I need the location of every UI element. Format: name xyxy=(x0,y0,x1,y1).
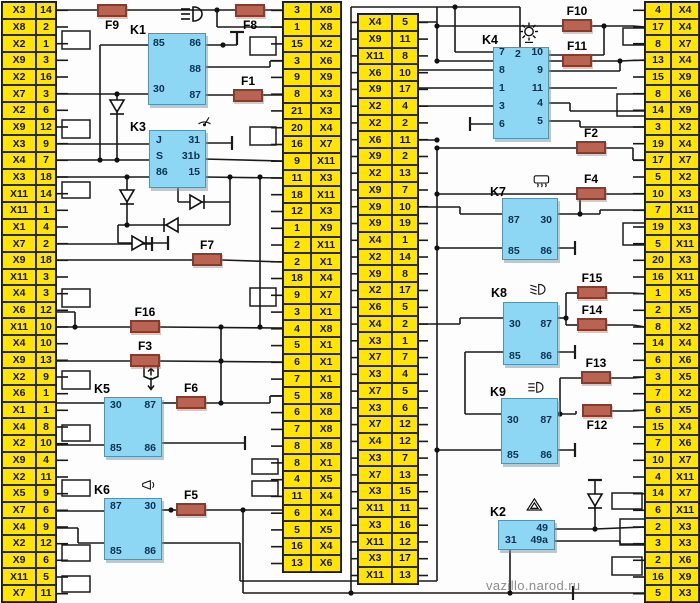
relay-pin-5: 5 xyxy=(537,116,543,127)
connector-cell: 8 xyxy=(645,35,671,52)
connector-cell: X2 xyxy=(358,249,392,266)
connector-row: 7X11 xyxy=(645,202,699,219)
connector-cell: 19 xyxy=(645,135,671,152)
connector-cell: X5 xyxy=(2,485,36,502)
connector-cell: 8 xyxy=(283,454,311,471)
connector-cell: 11 xyxy=(36,585,56,602)
fuse-label-F15: F15 xyxy=(575,271,609,285)
connector-cell: 4 xyxy=(392,366,418,383)
relay-pin-86: 86 xyxy=(156,167,168,178)
connector-cell: X3 xyxy=(2,169,36,186)
connector-cell: 3 xyxy=(36,85,56,102)
connector-row: X42 xyxy=(358,316,418,333)
connector-cell: 10 xyxy=(392,198,418,215)
connector-column-mid_left: 3X81X815X23X69X98X321X320X416X79X1111X31… xyxy=(282,1,342,573)
connector-cell: 16 xyxy=(36,69,56,86)
connector-cell: 18 xyxy=(36,252,56,269)
connector-row: 7X6 xyxy=(645,435,699,452)
connector-cell: 12 xyxy=(36,535,56,552)
relay-pin-30: 30 xyxy=(110,400,122,411)
connector-cell: 2 xyxy=(36,19,56,36)
connector-row: 6X8 xyxy=(283,404,341,421)
connector-cell: 15 xyxy=(645,69,671,86)
connector-cell: X4 xyxy=(358,316,392,333)
relay-pin-10: 10 xyxy=(531,47,543,58)
fuse-F14 xyxy=(577,318,607,331)
connector-cell: 2 xyxy=(645,552,671,569)
connector-cell: 9 xyxy=(283,153,311,170)
connector-cell: 16 xyxy=(283,136,311,153)
jumper-link xyxy=(623,28,645,45)
connector-row: 3X6 xyxy=(283,52,341,69)
connector-cell: X4 xyxy=(671,135,699,152)
connector-cell: X2 xyxy=(2,468,36,485)
connector-row: 15X9 xyxy=(645,69,699,86)
connector-cell: 14 xyxy=(392,249,418,266)
connector-cell: 6 xyxy=(645,502,671,519)
connector-row: X113 xyxy=(2,269,56,286)
connector-cell: 6 xyxy=(36,552,56,569)
relay-pin-9: 9 xyxy=(537,65,543,76)
relay-pin-2: 2 xyxy=(515,49,521,60)
jumper-link xyxy=(250,37,276,55)
connector-row: 17X4 xyxy=(645,19,699,36)
connector-cell: X9 xyxy=(671,568,699,585)
connector-cell: X9 xyxy=(2,119,36,136)
connector-cell: 12 xyxy=(36,119,56,136)
fuse-label-F5: F5 xyxy=(174,488,208,502)
connector-cell: 10 xyxy=(645,185,671,202)
connector-cell: X3 xyxy=(671,585,699,602)
connector-cell: 4 xyxy=(645,2,671,19)
connector-cell: 9 xyxy=(36,518,56,535)
fuse-label-F1: F1 xyxy=(231,74,265,88)
connector-cell: X1 xyxy=(311,371,341,388)
junction-dot xyxy=(601,23,606,28)
connector-cell: X2 xyxy=(358,282,392,299)
connector-row: X77 xyxy=(358,349,418,366)
connector-cell: 12 xyxy=(283,203,311,220)
connector-cell: X6 xyxy=(2,385,36,402)
high-beam-icon xyxy=(179,5,205,25)
connector-row: 2X11 xyxy=(283,237,341,254)
connector-cell: 8 xyxy=(36,418,56,435)
fuse-label-F14: F14 xyxy=(575,303,609,317)
connector-cell: 12 xyxy=(392,433,418,450)
connector-row: X31 xyxy=(358,332,418,349)
relay-label-K3: K3 xyxy=(130,120,146,134)
connector-cell: 2 xyxy=(36,235,56,252)
relay-K4: 2781361091145 xyxy=(493,47,549,139)
relay-label-K7: K7 xyxy=(490,185,506,199)
connector-cell: X2 xyxy=(2,368,36,385)
connector-row: X59 xyxy=(2,485,56,502)
connector-row: 3X5 xyxy=(645,368,699,385)
relay-K2: 493149a xyxy=(498,520,555,550)
connector-row: X115 xyxy=(2,568,56,585)
connector-cell: X2 xyxy=(358,115,392,132)
connector-row: X214 xyxy=(358,249,418,266)
junction-dot xyxy=(218,358,223,363)
connector-cell: X11 xyxy=(311,237,341,254)
connector-cell: X2 xyxy=(2,535,36,552)
connector-cell: X11 xyxy=(671,468,699,485)
connector-row: X210 xyxy=(2,435,56,452)
relay-K3: J31S31b8615 xyxy=(149,130,206,188)
connector-cell: X3 xyxy=(358,399,392,416)
connector-row: 4X5 xyxy=(283,471,341,488)
diode xyxy=(120,190,134,204)
connector-cell: 4 xyxy=(36,219,56,236)
connector-row: X76 xyxy=(2,502,56,519)
relay-pin-86: 86 xyxy=(144,443,156,454)
jumper-link xyxy=(62,31,90,49)
connector-cell: 1 xyxy=(392,332,418,349)
connector-row: 3X2 xyxy=(645,119,699,136)
diode xyxy=(164,218,178,232)
connector-cell: X9 xyxy=(358,182,392,199)
connector-cell: 1 xyxy=(36,385,56,402)
connector-row: 6X1 xyxy=(283,354,341,371)
relay-pin-31: 31 xyxy=(505,535,517,546)
connector-row: 15X4 xyxy=(645,418,699,435)
relay-pin-4: 4 xyxy=(537,98,543,109)
fuse-label-F2: F2 xyxy=(574,126,608,140)
connector-cell: 4 xyxy=(283,471,311,488)
relay-pin-8: 8 xyxy=(499,65,505,76)
connector-cell: 18 xyxy=(36,169,56,186)
connector-cell: X9 xyxy=(671,102,699,119)
connector-column-mid_right: X45X911X118X610X917X24X22X611X92X213X97X… xyxy=(357,13,419,585)
connector-cell: 15 xyxy=(283,36,311,53)
connector-cell: X3 xyxy=(311,86,341,103)
connector-cell: 17 xyxy=(392,81,418,98)
relay-pin-11: 11 xyxy=(532,83,543,94)
connector-row: 19X3 xyxy=(645,219,699,236)
connector-row: X610 xyxy=(358,64,418,81)
connector-cell: 10 xyxy=(36,335,56,352)
connector-cell: 3 xyxy=(645,368,671,385)
connector-cell: X4 xyxy=(671,335,699,352)
junction-dot xyxy=(220,42,225,47)
junction-dot xyxy=(577,211,582,216)
connector-row: 6X11 xyxy=(645,502,699,519)
connector-cell: X2 xyxy=(2,35,36,52)
connector-cell: X11 xyxy=(358,48,392,65)
connector-cell: 20 xyxy=(283,119,311,136)
connector-cell: X7 xyxy=(2,502,36,519)
connector-cell: 8 xyxy=(392,48,418,65)
relay-pin-85: 85 xyxy=(509,351,521,362)
connector-row: 12X3 xyxy=(283,203,341,220)
connector-row: X94 xyxy=(2,452,56,469)
connector-row: 14X4 xyxy=(645,335,699,352)
junction-dot xyxy=(452,4,457,9)
fuse-label-F8: F8 xyxy=(233,18,267,32)
connector-cell: X8 xyxy=(311,19,341,36)
connector-cell: 10 xyxy=(392,64,418,81)
fuse-F1 xyxy=(233,89,263,102)
connector-row: X118 xyxy=(358,48,418,65)
wiper-icon xyxy=(196,115,216,130)
connector-cell: X7 xyxy=(358,466,392,483)
connector-cell: 3 xyxy=(645,119,671,136)
relay-pin-87: 87 xyxy=(540,319,552,330)
connector-cell: 12 xyxy=(392,533,418,550)
connector-cell: X1 xyxy=(2,219,36,236)
fuse-F12 xyxy=(582,404,612,417)
connector-row: 7X2 xyxy=(645,385,699,402)
connector-cell: 1 xyxy=(283,220,311,237)
jumper-link xyxy=(252,481,278,496)
connector-cell: X4 xyxy=(2,285,36,302)
junction-dot xyxy=(218,400,223,405)
connector-row: X410 xyxy=(2,335,56,352)
hazard-icon xyxy=(526,498,546,514)
heated-rear-window-icon xyxy=(533,175,553,191)
connector-cell: 7 xyxy=(392,349,418,366)
connector-cell: 17 xyxy=(392,550,418,567)
connector-row: X611 xyxy=(358,131,418,148)
connector-cell: X8 xyxy=(311,404,341,421)
connector-row: 10X7 xyxy=(645,452,699,469)
connector-row: 5X1 xyxy=(283,337,341,354)
connector-row: X712 xyxy=(358,416,418,433)
connector-cell: X2 xyxy=(671,385,699,402)
connector-cell: X4 xyxy=(2,335,36,352)
connector-row: 4X11 xyxy=(645,468,699,485)
connector-row: 16X9 xyxy=(645,568,699,585)
connector-cell: X7 xyxy=(311,136,341,153)
connector-cell: X6 xyxy=(358,64,392,81)
connector-row: X34 xyxy=(358,366,418,383)
connector-cell: X6 xyxy=(358,299,392,316)
relay-pin-49a: 49a xyxy=(530,535,548,546)
connector-cell: 16 xyxy=(283,538,311,555)
connector-cell: X4 xyxy=(671,2,699,19)
junction-dot xyxy=(434,58,439,63)
connector-row: X1111 xyxy=(358,500,418,517)
connector-cell: X8 xyxy=(311,320,341,337)
connector-row: 1X8 xyxy=(283,19,341,36)
relay-pin-6: 6 xyxy=(499,119,505,130)
connector-cell: 17 xyxy=(645,152,671,169)
connector-cell: 2 xyxy=(392,148,418,165)
relay-K5: 30878586 xyxy=(104,397,162,457)
jumper-link xyxy=(250,127,276,145)
connector-cell: X2 xyxy=(2,102,36,119)
connector-row: X212 xyxy=(2,535,56,552)
connector-cell: 6 xyxy=(283,354,311,371)
connector-cell: 3 xyxy=(645,535,671,552)
connector-cell: X11 xyxy=(358,533,392,550)
connector-cell: 5 xyxy=(283,521,311,538)
connector-cell: X11 xyxy=(358,500,392,517)
fuse-F4 xyxy=(576,187,606,200)
connector-row: X11 xyxy=(2,402,56,419)
junction-dot xyxy=(124,222,129,227)
connector-cell: X9 xyxy=(358,31,392,48)
junction-dot xyxy=(557,411,562,416)
connector-cell: X7 xyxy=(358,349,392,366)
connector-cell: X3 xyxy=(311,203,341,220)
jumper-link xyxy=(617,94,645,116)
connector-cell: 4 xyxy=(645,468,671,485)
connector-cell: 9 xyxy=(36,368,56,385)
connector-cell: X11 xyxy=(2,568,36,585)
connector-row: 2X1 xyxy=(283,253,341,270)
connector-cell: 6 xyxy=(283,404,311,421)
relay-pin-86: 86 xyxy=(540,246,552,257)
fuse-label-F9: F9 xyxy=(95,18,129,32)
connector-cell: 9 xyxy=(283,287,311,304)
relay-pin-S: S xyxy=(156,151,163,162)
connector-cell: X4 xyxy=(358,14,392,31)
connector-cell: X9 xyxy=(2,52,36,69)
connector-row: 18X11 xyxy=(283,186,341,203)
connector-cell: X9 xyxy=(2,252,36,269)
connector-cell: 1 xyxy=(36,35,56,52)
connector-row: X216 xyxy=(2,69,56,86)
connector-cell: X6 xyxy=(671,352,699,369)
connector-cell: X6 xyxy=(311,555,341,572)
connector-cell: 18 xyxy=(283,186,311,203)
connector-cell: 1 xyxy=(36,402,56,419)
turn-flasher-icon xyxy=(517,20,541,43)
junction-dot xyxy=(434,145,439,150)
connector-cell: 4 xyxy=(36,452,56,469)
connector-cell: X9 xyxy=(358,198,392,215)
connector-cell: X2 xyxy=(358,98,392,115)
connector-cell: X8 xyxy=(2,19,36,36)
connector-cell: 3 xyxy=(283,304,311,321)
connector-row: X43 xyxy=(2,285,56,302)
connector-cell: X5 xyxy=(671,402,699,419)
relay-pin-87: 87 xyxy=(540,415,552,426)
connector-row: X92 xyxy=(358,148,418,165)
junction-dot xyxy=(227,174,232,179)
connector-row: X213 xyxy=(358,165,418,182)
connector-cell: X6 xyxy=(358,131,392,148)
connector-cell: X2 xyxy=(671,318,699,335)
connector-row: 21X3 xyxy=(283,103,341,120)
connector-cell: 1 xyxy=(645,285,671,302)
relay-pin-85: 85 xyxy=(507,450,519,461)
connector-cell: X3 xyxy=(2,2,36,19)
connector-cell: X8 xyxy=(311,421,341,438)
connector-row: 7X1 xyxy=(283,371,341,388)
connector-column-left: X314X82X21X93X216X73X26X912X39X47X318X11… xyxy=(1,1,57,603)
connector-row: X24 xyxy=(358,98,418,115)
connector-row: 11X3 xyxy=(283,170,341,187)
connector-cell: 17 xyxy=(645,19,671,36)
fuse-F13 xyxy=(581,371,611,384)
connector-row: 10X3 xyxy=(645,185,699,202)
connector-row: 5X11 xyxy=(645,235,699,252)
connector-cell: 13 xyxy=(392,466,418,483)
junction-dot xyxy=(214,7,219,12)
relay-label-K4: K4 xyxy=(482,33,498,47)
connector-row: 16X7 xyxy=(283,136,341,153)
connector-cell: 10 xyxy=(645,452,671,469)
connector-cell: X9 xyxy=(358,265,392,282)
fuse-F8 xyxy=(235,4,265,17)
connector-cell: 14 xyxy=(645,102,671,119)
junction-dot xyxy=(592,526,597,531)
connector-cell: X2 xyxy=(2,435,36,452)
connector-cell: 7 xyxy=(645,435,671,452)
connector-cell: X7 xyxy=(671,485,699,502)
connector-cell: X6 xyxy=(671,435,699,452)
relay-label-K2: K2 xyxy=(490,505,506,519)
connector-row: 15X2 xyxy=(283,36,341,53)
fuse-label-F16: F16 xyxy=(128,305,162,319)
connector-row: X912 xyxy=(2,119,56,136)
connector-row: 8X3 xyxy=(283,86,341,103)
connector-cell: X9 xyxy=(2,352,36,369)
connector-cell: 7 xyxy=(36,152,56,169)
connector-cell: X3 xyxy=(671,535,699,552)
connector-cell: 8 xyxy=(645,318,671,335)
connector-cell: X7 xyxy=(671,152,699,169)
connector-cell: X1 xyxy=(311,253,341,270)
connector-row: 4X4 xyxy=(645,2,699,19)
connector-cell: X6 xyxy=(671,552,699,569)
connector-row: X217 xyxy=(358,282,418,299)
connector-row: X412 xyxy=(358,433,418,450)
diode xyxy=(110,100,124,114)
connector-row: X29 xyxy=(2,368,56,385)
connector-cell: 7 xyxy=(392,182,418,199)
connector-cell: 12 xyxy=(392,416,418,433)
connector-row: X111 xyxy=(2,202,56,219)
jumper-link xyxy=(62,120,90,138)
jumper-link xyxy=(62,182,90,198)
connector-cell: X11 xyxy=(671,269,699,286)
fuse-label-F11: F11 xyxy=(560,39,594,53)
connector-row: X315 xyxy=(358,483,418,500)
connector-cell: X4 xyxy=(311,505,341,522)
connector-cell: 16 xyxy=(645,269,671,286)
connector-row: 14X7 xyxy=(645,485,699,502)
connector-cell: X2 xyxy=(2,69,36,86)
connector-row: X39 xyxy=(2,135,56,152)
connector-cell: X4 xyxy=(2,418,36,435)
connector-cell: 21 xyxy=(283,103,311,120)
connector-row: X1114 xyxy=(2,185,56,202)
relay-K7: 87308586 xyxy=(502,198,558,260)
relay-label-K9: K9 xyxy=(490,385,506,399)
connector-row: X713 xyxy=(358,466,418,483)
connector-cell: X8 xyxy=(311,438,341,455)
connector-row: X72 xyxy=(2,235,56,252)
connector-row: 5X3 xyxy=(645,585,699,602)
connector-cell: X8 xyxy=(311,387,341,404)
connector-row: 9X11 xyxy=(283,153,341,170)
junction-dot xyxy=(168,507,173,512)
diode xyxy=(588,494,602,508)
connector-cell: 9 xyxy=(36,135,56,152)
relay-pin-85: 85 xyxy=(508,246,520,257)
connector-row: 5X8 xyxy=(283,387,341,404)
fuse-F9 xyxy=(97,4,127,17)
connector-cell: X9 xyxy=(358,148,392,165)
connector-row: X82 xyxy=(2,19,56,36)
connector-row: 3X8 xyxy=(283,2,341,19)
connector-row: X1110 xyxy=(2,318,56,335)
connector-cell: X9 xyxy=(358,215,392,232)
connector-cell: 1 xyxy=(392,232,418,249)
